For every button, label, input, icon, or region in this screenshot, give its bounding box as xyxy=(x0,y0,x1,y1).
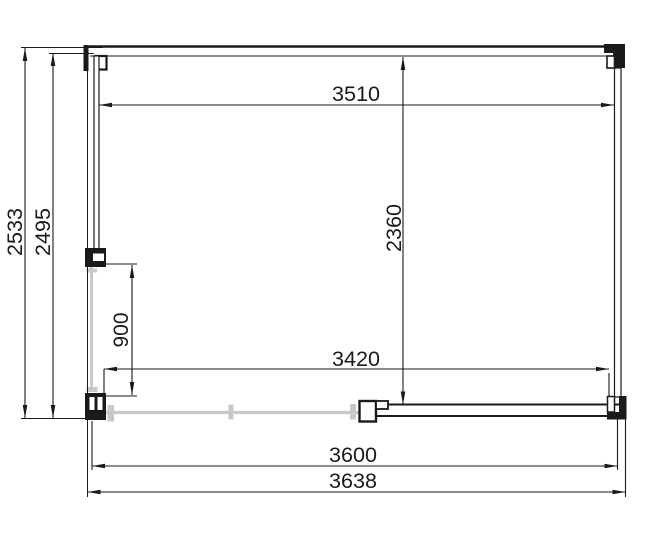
post-top-right-notch xyxy=(607,56,615,68)
dimension-value: 3600 xyxy=(329,444,377,467)
arrow-up-icon xyxy=(130,265,135,278)
dimension-inner-width-back: 3420 xyxy=(104,348,609,396)
post-left-middle-notch xyxy=(93,254,104,262)
bottom-wall xyxy=(376,405,620,417)
arrow-up-icon xyxy=(51,53,56,66)
arrow-left-icon xyxy=(99,103,112,108)
arrow-down-icon xyxy=(23,405,28,418)
dimension-value: 3510 xyxy=(332,83,380,106)
dimension-frame-width: 3600 xyxy=(92,419,618,470)
dimension-value: 3420 xyxy=(332,348,380,371)
left-wall xyxy=(94,56,99,249)
dimension-inner-width-front: 3510 xyxy=(99,83,614,107)
drawing-page: 3510 2360 900 xyxy=(0,0,659,535)
arrow-up-icon xyxy=(23,48,28,61)
dimension-value: 3638 xyxy=(329,470,377,493)
arrow-down-icon xyxy=(130,382,135,395)
dimension-value: 900 xyxy=(110,313,133,348)
dimension-frame-depth: 2495 xyxy=(32,53,94,418)
structure xyxy=(84,44,627,497)
dimension-inner-depth: 2360 xyxy=(383,57,406,405)
arrow-left-icon xyxy=(92,464,105,469)
corner-post-bottom-right xyxy=(607,412,627,420)
arrow-left-icon xyxy=(88,490,101,495)
corner-post-bottom-left-slot xyxy=(90,397,95,410)
corner-post-bottom-left-slot xyxy=(98,397,103,410)
arrow-down-icon xyxy=(51,405,56,418)
bottom-wall-end-post xyxy=(360,401,377,422)
corner-post-bottom-left xyxy=(85,393,106,420)
right-wall xyxy=(615,68,622,397)
dimension-value: 2360 xyxy=(383,204,406,252)
dimension-side-opening: 900 xyxy=(95,264,137,396)
arrow-right-icon xyxy=(605,464,618,469)
corner-post-top-left xyxy=(84,45,89,71)
arrow-right-icon xyxy=(613,490,626,495)
dimension-value: 2533 xyxy=(4,208,27,256)
dimension-value: 2495 xyxy=(32,208,55,256)
arrow-right-icon xyxy=(601,103,614,108)
floor-plan-canvas: 3510 2360 900 xyxy=(0,0,659,535)
post-bottom-right xyxy=(608,397,615,413)
arrow-right-icon xyxy=(596,367,609,372)
bottom-wall-step xyxy=(376,401,388,409)
arrow-left-icon xyxy=(104,367,117,372)
arrow-down-icon xyxy=(401,392,406,405)
arrow-up-icon xyxy=(401,57,406,70)
